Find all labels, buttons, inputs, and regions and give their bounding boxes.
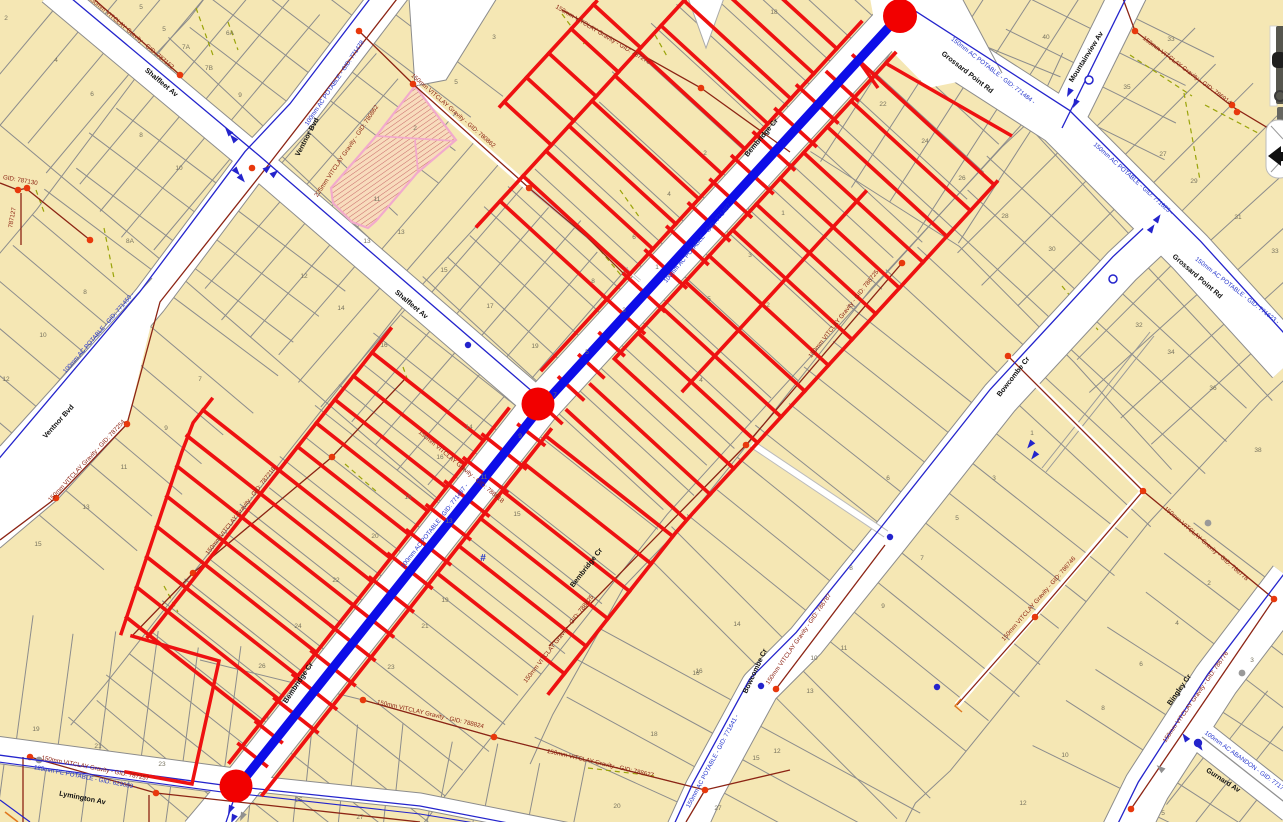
svg-text:3: 3 xyxy=(748,252,752,259)
svg-text:2: 2 xyxy=(703,150,707,157)
svg-text:24: 24 xyxy=(921,138,929,145)
svg-text:14: 14 xyxy=(337,305,345,312)
svg-text:3: 3 xyxy=(1250,657,1254,664)
svg-text:17: 17 xyxy=(486,303,494,310)
svg-text:8A: 8A xyxy=(126,238,135,245)
svg-text:4: 4 xyxy=(699,377,703,384)
svg-text:27: 27 xyxy=(714,805,722,812)
svg-text:35: 35 xyxy=(1123,84,1131,91)
svg-text:9: 9 xyxy=(881,603,885,610)
svg-text:28: 28 xyxy=(1001,213,1009,220)
svg-text:30: 30 xyxy=(1048,246,1056,253)
svg-text:5: 5 xyxy=(139,4,143,11)
svg-text:13: 13 xyxy=(397,229,405,236)
svg-text:36: 36 xyxy=(1209,385,1217,392)
svg-text:9: 9 xyxy=(164,425,168,432)
svg-text:13: 13 xyxy=(363,238,371,245)
svg-text:20: 20 xyxy=(613,803,621,810)
svg-text:11: 11 xyxy=(374,196,381,203)
svg-text:18: 18 xyxy=(650,731,658,738)
svg-text:11: 11 xyxy=(841,645,848,652)
svg-text:3: 3 xyxy=(492,34,496,41)
svg-text:15: 15 xyxy=(34,541,42,548)
svg-text:24: 24 xyxy=(294,623,302,630)
svg-text:31: 31 xyxy=(1234,214,1242,221)
svg-text:7B: 7B xyxy=(205,65,213,72)
svg-text:22: 22 xyxy=(879,101,887,108)
svg-text:1: 1 xyxy=(781,210,785,217)
svg-text:3: 3 xyxy=(622,307,626,314)
svg-text:21: 21 xyxy=(421,623,429,630)
svg-text:15: 15 xyxy=(513,511,521,518)
svg-text:13: 13 xyxy=(806,688,814,695)
svg-text:6A: 6A xyxy=(226,30,235,37)
svg-text:26: 26 xyxy=(958,175,966,182)
svg-text:14: 14 xyxy=(465,424,473,431)
svg-text:16: 16 xyxy=(380,342,388,349)
svg-text:11: 11 xyxy=(121,464,128,471)
svg-text:5: 5 xyxy=(955,515,959,522)
svg-text:9: 9 xyxy=(238,92,242,99)
svg-text:12: 12 xyxy=(773,748,781,755)
svg-text:8: 8 xyxy=(139,132,143,139)
svg-text:1: 1 xyxy=(1030,430,1034,437)
svg-text:33: 33 xyxy=(1167,36,1175,43)
svg-text:7: 7 xyxy=(553,392,557,399)
svg-text:2: 2 xyxy=(413,125,417,132)
svg-text:5: 5 xyxy=(707,296,711,303)
svg-text:6: 6 xyxy=(632,234,636,241)
svg-text:8: 8 xyxy=(83,289,87,296)
svg-text:23: 23 xyxy=(158,761,166,768)
svg-text:5: 5 xyxy=(1161,810,1165,817)
svg-text:21: 21 xyxy=(94,743,102,750)
svg-text:4: 4 xyxy=(667,191,671,198)
svg-text:2: 2 xyxy=(1207,580,1211,587)
svg-text:8: 8 xyxy=(849,565,853,572)
svg-text:8: 8 xyxy=(591,278,595,285)
svg-text:7A: 7A xyxy=(182,44,191,51)
svg-text:16: 16 xyxy=(436,454,444,461)
svg-text:33: 33 xyxy=(1271,248,1279,255)
svg-text:18: 18 xyxy=(404,494,412,501)
svg-text:6: 6 xyxy=(90,91,94,98)
svg-text:16: 16 xyxy=(692,670,700,677)
svg-text:11: 11 xyxy=(481,474,488,481)
svg-text:23: 23 xyxy=(387,664,395,671)
svg-text:5: 5 xyxy=(162,26,166,33)
svg-text:2: 2 xyxy=(4,15,8,22)
svg-text:5: 5 xyxy=(454,79,458,86)
svg-text:15: 15 xyxy=(440,267,448,274)
svg-text:5: 5 xyxy=(585,349,589,356)
svg-text:27: 27 xyxy=(1159,151,1167,158)
svg-text:13: 13 xyxy=(82,504,90,511)
svg-text:6: 6 xyxy=(886,475,890,482)
svg-text:12: 12 xyxy=(1019,800,1027,807)
svg-text:32: 32 xyxy=(1135,322,1143,329)
svg-text:12: 12 xyxy=(300,273,308,280)
svg-text:10: 10 xyxy=(175,165,183,172)
svg-text:7: 7 xyxy=(920,555,924,562)
svg-text:22: 22 xyxy=(332,577,340,584)
svg-text:7: 7 xyxy=(198,376,202,383)
svg-text:25: 25 xyxy=(295,797,303,804)
svg-text:26: 26 xyxy=(258,663,266,670)
svg-text:9: 9 xyxy=(518,433,522,440)
svg-text:10: 10 xyxy=(1061,752,1069,759)
svg-text:34: 34 xyxy=(1167,349,1175,356)
svg-text:38: 38 xyxy=(1254,447,1262,454)
svg-text:18: 18 xyxy=(770,9,778,16)
svg-text:6: 6 xyxy=(1139,661,1143,668)
svg-text:2: 2 xyxy=(766,302,770,309)
svg-text:15: 15 xyxy=(752,755,760,762)
svg-text:4: 4 xyxy=(1175,620,1179,627)
svg-text:27: 27 xyxy=(356,814,364,821)
svg-text:8: 8 xyxy=(1101,705,1105,712)
svg-text:10: 10 xyxy=(39,332,47,339)
svg-text:19: 19 xyxy=(531,343,539,350)
svg-text:20: 20 xyxy=(371,533,379,540)
svg-text:1: 1 xyxy=(655,264,659,271)
svg-text:40: 40 xyxy=(1042,34,1050,41)
svg-text:19: 19 xyxy=(441,597,449,604)
svg-text:12: 12 xyxy=(2,376,10,383)
svg-text:14: 14 xyxy=(733,621,741,628)
svg-text:4: 4 xyxy=(54,57,58,64)
svg-text:19: 19 xyxy=(32,726,40,733)
svg-text:13: 13 xyxy=(445,518,453,525)
svg-text:10: 10 xyxy=(810,655,818,662)
svg-text:3: 3 xyxy=(992,475,996,482)
svg-text:29: 29 xyxy=(1190,178,1198,185)
